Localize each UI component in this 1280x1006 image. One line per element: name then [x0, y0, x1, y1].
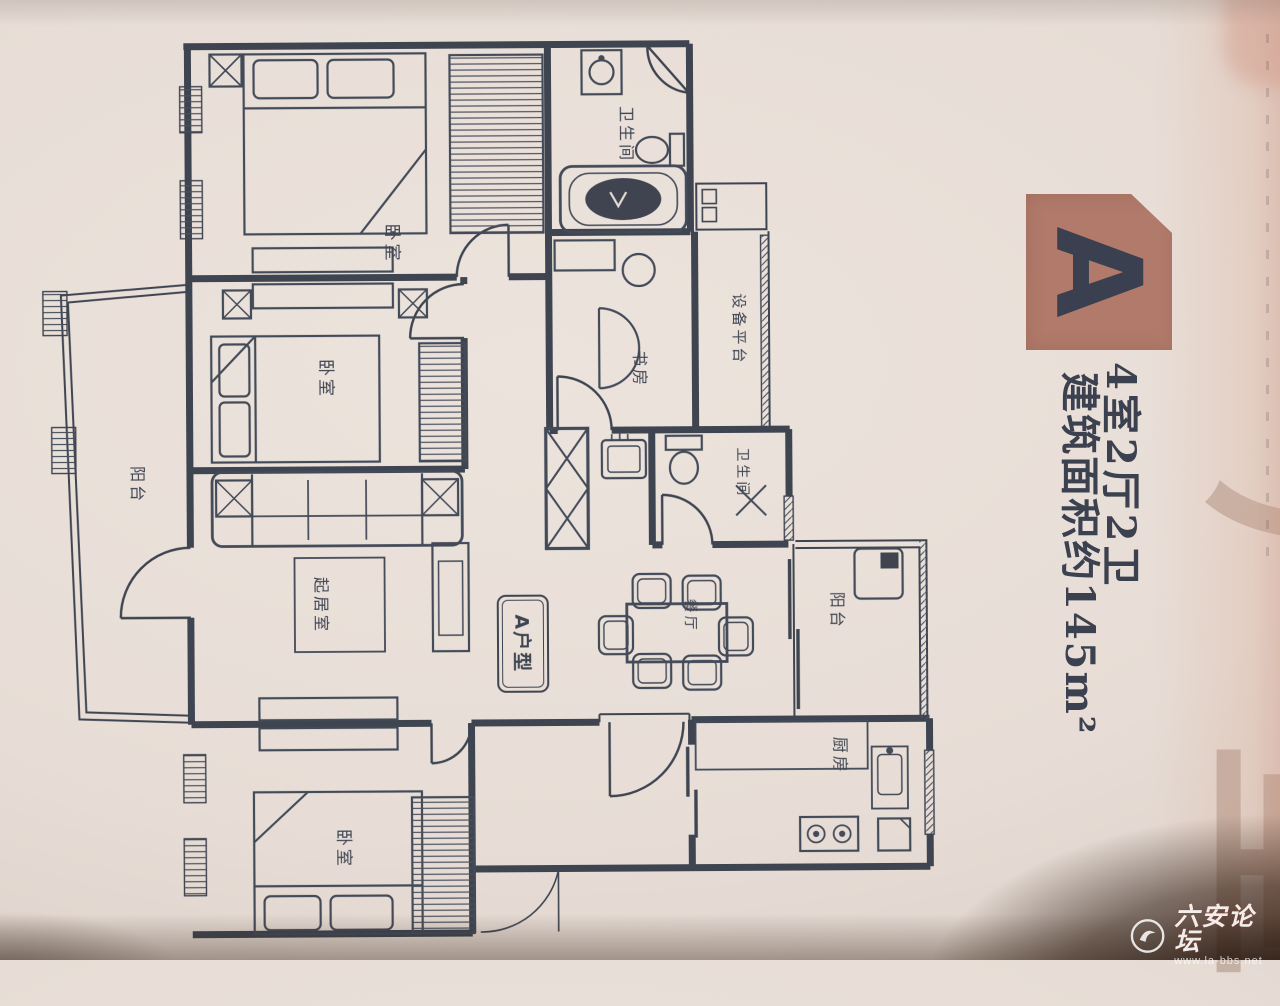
room-label-balcony-right: 阳台 — [829, 592, 845, 630]
walls — [183, 42, 930, 935]
plan-type-stamp: A户型 — [497, 595, 550, 693]
room-label-bathroom-middle: 卫生间 — [735, 447, 749, 498]
page-bleed-marks — [1266, 34, 1269, 574]
washing-machine — [854, 548, 902, 598]
dresser — [259, 697, 397, 720]
room-label-bathroom-top: 卫生间 — [618, 106, 634, 163]
dresser — [253, 248, 393, 273]
sofa — [212, 471, 462, 547]
title-floor-area: 建筑面积约145m² — [1059, 372, 1099, 735]
type-a-letter: A — [1040, 226, 1158, 317]
room-label-equipment-platform: 设备平台 — [731, 293, 746, 365]
room-label-living-room: 起居室 — [313, 577, 329, 634]
plan-type-stamp-label: A户型 — [509, 614, 536, 673]
bathtub — [560, 166, 686, 233]
stove — [800, 817, 858, 851]
room-label-bedroom-middle: 卧室 — [316, 359, 333, 399]
dresser — [253, 284, 393, 309]
type-a-badge: A — [1026, 194, 1172, 350]
room-label-kitchen: 厨房 — [832, 737, 848, 775]
room-label-bedroom-top: 卧室 — [382, 223, 399, 263]
rug — [294, 558, 385, 653]
watermark: 六安论坛 www.la-bbs.net — [1128, 904, 1280, 967]
duct-shaft — [546, 428, 589, 548]
floorplan-photo: { "badge_letter": "A", "title_line1": "4… — [0, 0, 1280, 960]
room-label-balcony-left: 阳台 — [129, 466, 145, 504]
dresser — [260, 727, 398, 750]
wardrobe-top — [449, 55, 543, 234]
dining-table — [599, 573, 754, 690]
furniture — [209, 48, 910, 934]
toilet — [666, 436, 702, 484]
watermark-site-url: www.la-bbs.net — [1174, 956, 1280, 967]
room-label-study: 书房 — [631, 350, 647, 388]
title-rooms-count: 4室2厅2卫 — [1100, 362, 1140, 590]
bed-top-bedroom — [243, 53, 426, 234]
bed-middle-bedroom — [211, 336, 380, 463]
toilet — [636, 134, 684, 166]
room-label-bedroom-bottom: 卧室 — [334, 829, 351, 869]
nightstand — [223, 290, 251, 318]
wardrobe-middle — [419, 343, 466, 461]
fridge — [878, 818, 910, 850]
sink — [581, 50, 621, 94]
washbasin — [602, 432, 646, 478]
room-label-dining-room: 餐厅 — [683, 599, 697, 633]
watermark-site-name: 六安论坛 — [1174, 904, 1280, 954]
wardrobe-bottom — [412, 797, 475, 933]
nightstand — [209, 54, 241, 86]
tv-cabinet — [432, 543, 469, 651]
forum-logo-icon — [1128, 916, 1167, 956]
kitchen-sink — [872, 746, 908, 808]
